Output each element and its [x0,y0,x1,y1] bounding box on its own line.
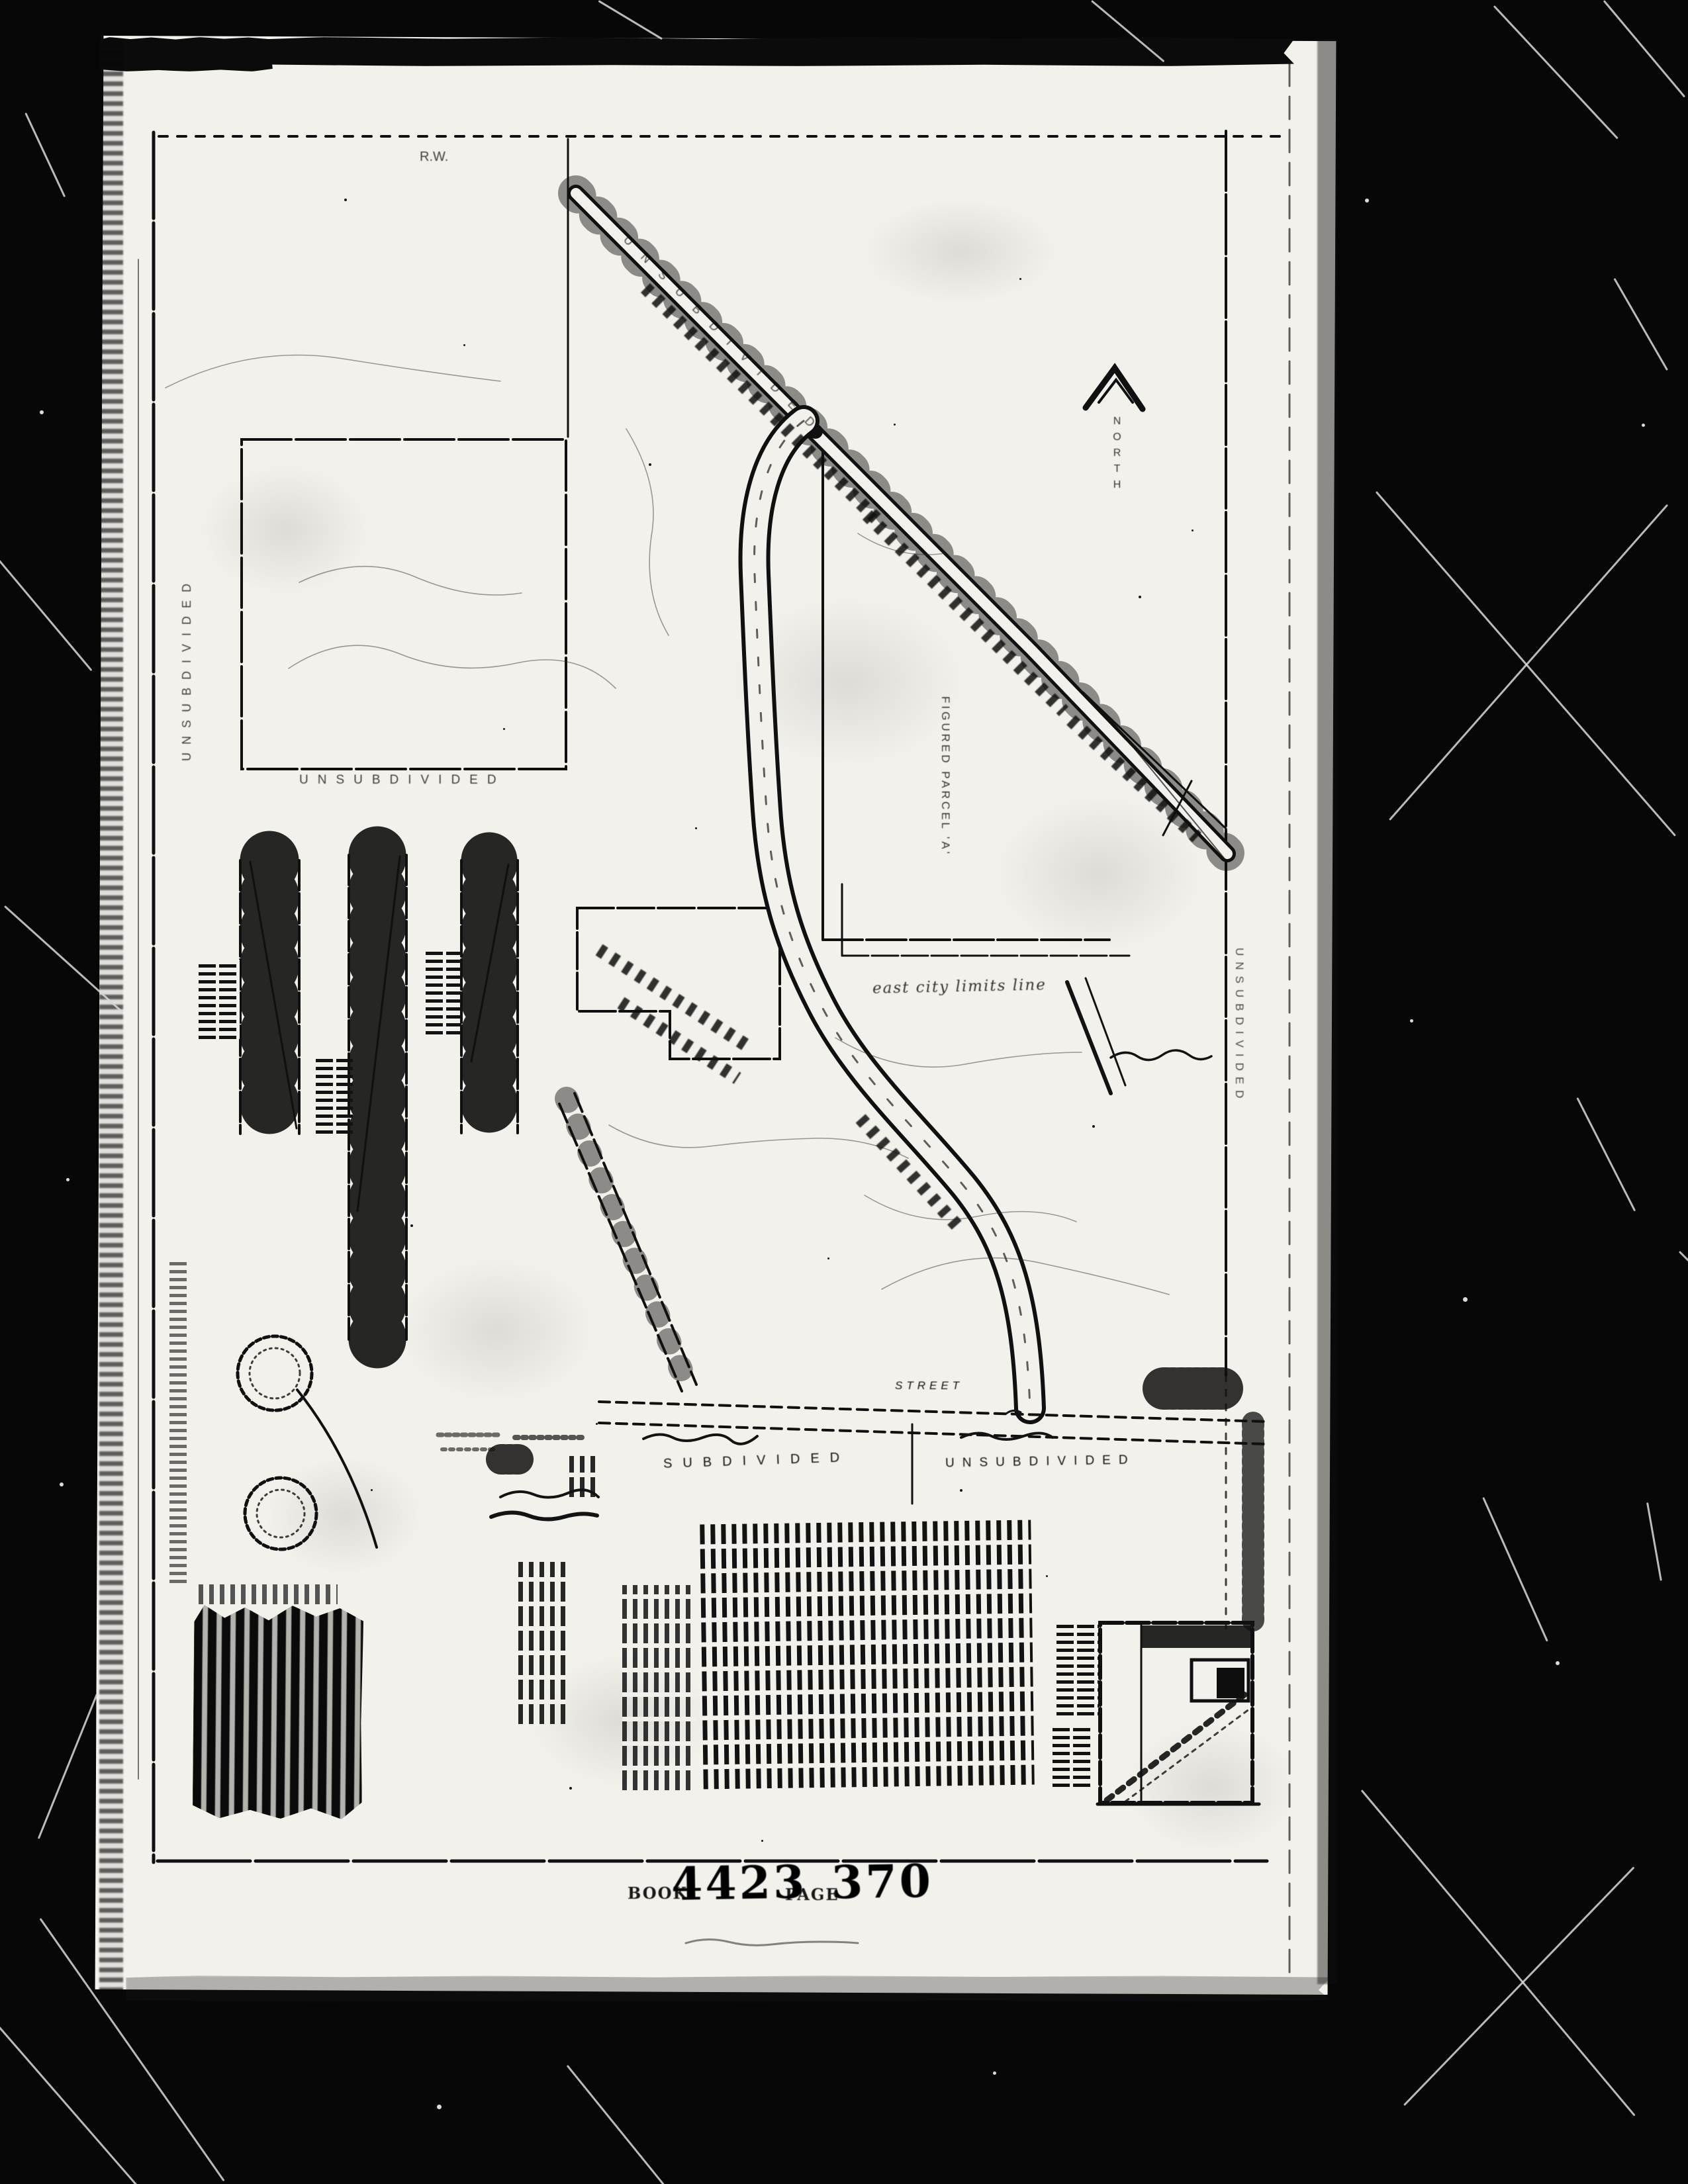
ink-speck [1192,529,1194,531]
ink-speck [463,344,465,346]
photocopy-corner-wedge [99,37,273,71]
margin-speck [1642,424,1645,427]
inset-caption-block [1056,1623,1099,1715]
ink-speck [569,1787,572,1790]
dark-stamp-block [193,1605,364,1819]
ink-speck [1139,596,1141,598]
margin-speck [66,1178,70,1181]
ink-speck [1019,278,1021,280]
north-label: NORTH [1111,416,1123,487]
stamp-page-number: 370 [831,1855,933,1910]
ink-speck [371,1489,373,1491]
paper-right-shadow [1317,38,1337,1984]
ink-speck [827,1257,829,1259]
pen-stroke [297,1390,377,1547]
area-label-left-unsubdivided: UNSUBDIVIDED [180,502,194,761]
seal-stamp-icon [257,1490,305,1537]
inset-filled-parcel [1217,1668,1244,1698]
diagonal-road-branch-2 [1112,721,1226,860]
city-limits-label: east city limits line [872,976,1047,997]
ink-speck [761,1840,763,1842]
sw-road-ticks [567,1099,688,1387]
margin-speck [993,2071,996,2075]
area-label-right-unsubdivided: UNSUBDIVIDED [1233,948,1246,1261]
ink-speck [596,1423,598,1425]
seal-stamp-icon [245,1478,316,1549]
ink-speck [695,827,697,829]
margin-tick-column [169,1259,189,1583]
margin-speck [1556,1661,1560,1665]
north-arrow-icon [1086,368,1143,409]
vicinity-inset-box [1100,1623,1252,1803]
ink-speck [503,728,505,730]
ink-speck [278,1032,280,1034]
margin-speck [1365,199,1369,203]
sw-road-west-edge [559,1104,682,1391]
area-label-upper-left-unsubdivided: UNSUBDIVIDED [299,773,506,788]
ink-speck [894,424,896,426]
certificate-text-block [622,1585,696,1790]
inset-diagonal-road-thin [1125,1709,1250,1801]
ink-speck [410,1224,413,1227]
margin-speck [1463,1297,1468,1302]
margin-speck [1410,1019,1413,1023]
ink-blob-column [569,1456,601,1497]
ink-speck [649,463,651,466]
paper-left-ragged-edge [99,38,123,1992]
seal-stamp-icon [250,1348,300,1398]
inset-diagonal-road [1107,1692,1248,1800]
right-of-way-mark: R.W. [420,150,448,165]
ink-speck [344,199,347,201]
dedication-text-strip [199,1582,338,1604]
margin-speck [60,1482,64,1486]
curved-street-core [755,421,1030,1408]
margin-speck [437,2105,442,2109]
upper-left-parcel-outline [242,439,566,769]
ink-speck [1092,1125,1095,1128]
lot-number-cluster [316,1056,353,1134]
ink-speck [960,1489,962,1492]
inset-dark-strip [1141,1625,1251,1648]
sw-road-east-edge [575,1093,696,1385]
paper-bottom-shadow [126,1976,1331,2002]
parcel-a-label: FIGURED PARCEL 'A' [920,696,952,839]
street-label: STREET [895,1379,963,1392]
lot-number-cluster [199,960,240,1039]
bottom-street-south-edge [599,1423,1267,1444]
lot-number-cluster [426,951,461,1034]
certificate-text-block [518,1562,566,1724]
margin-speck [40,410,44,414]
scanned-plat-map-page: UNSUBDIVIDED UNSUBDIVIDED UNSUBDIVIDED U… [0,0,1688,2184]
inset-caption-block [1053,1726,1091,1787]
contour-lines [165,355,1169,1295]
certificate-text-block [700,1520,1035,1790]
ink-speck [1046,1575,1048,1577]
